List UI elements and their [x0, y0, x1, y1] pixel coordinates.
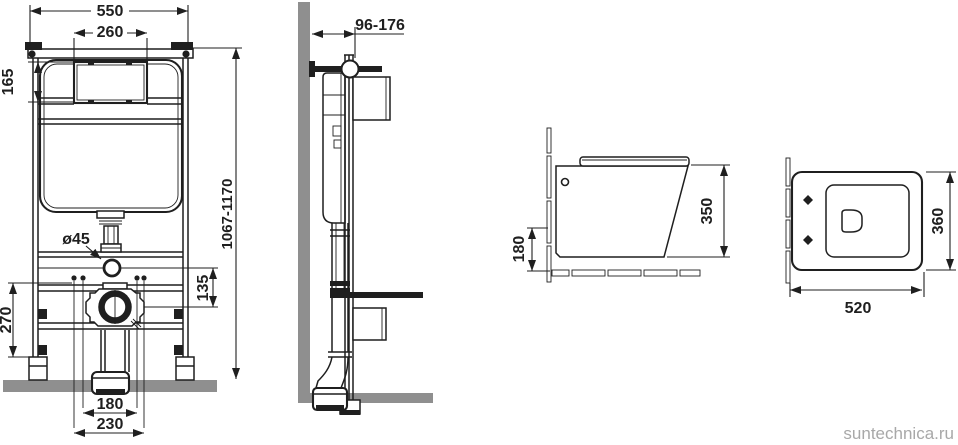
dim-stud-spacing-180: 180 — [83, 396, 137, 413]
dim-350-label: 350 — [699, 198, 716, 225]
bowl-outline-top — [792, 172, 922, 270]
dim-flush-diameter-45: ø45 — [62, 231, 101, 259]
dim-96-176-label: 96-176 — [355, 17, 405, 34]
dim-depth-96-176: 96-176 — [312, 17, 405, 58]
watermark-text: suntechnica.ru — [843, 424, 954, 443]
dim-stud-spacing-230: 230 — [74, 416, 144, 433]
bowl-top-view: 360 520 — [786, 158, 956, 317]
bowl-profile — [556, 157, 689, 257]
dim-bowl-length-520: 520 — [790, 272, 924, 317]
dim-180-label: 180 — [97, 396, 124, 413]
wall-hatch-top — [786, 158, 790, 283]
flush-pipe-fitting — [97, 211, 124, 252]
dim-270-label: 270 — [0, 307, 15, 334]
drain-assembly — [86, 283, 144, 394]
wall-side — [298, 2, 310, 403]
dim-360-label: 360 — [930, 208, 947, 235]
flush-pipe-side — [330, 223, 350, 298]
dim-frame-height-1067-1170: 1067-1170 — [193, 48, 242, 379]
bracket-nut — [342, 61, 359, 78]
floor-hatch-side — [552, 270, 700, 276]
dim-520-label: 520 — [845, 300, 872, 317]
dim-230-label: 230 — [97, 416, 124, 433]
dim-o45-label: ø45 — [62, 231, 90, 248]
corner-bracket-right — [171, 42, 193, 50]
cistern-side-profile — [323, 73, 345, 223]
dim-lower-zone-270: 270 — [0, 283, 72, 357]
screw-right — [182, 50, 189, 57]
flush-housing-box — [353, 77, 390, 120]
flush-outlet-circle — [104, 260, 120, 276]
frame-top-rail — [25, 42, 193, 58]
wall-hatch-side — [547, 128, 551, 282]
dim-bowl-width-360: 360 — [926, 172, 956, 270]
bowl-side-view: 350 180 — [511, 128, 730, 282]
corner-bracket-left — [25, 42, 42, 50]
technical-drawing-page: 550 260 165 1067-1170 ø45 — [0, 0, 958, 445]
seat-hinge-hole — [562, 179, 569, 186]
dim-height-range-label: 1067-1170 — [219, 179, 236, 250]
dim-550-label: 550 — [97, 3, 124, 20]
dim-bowl-180-label: 180 — [511, 236, 528, 263]
dim-260-label: 260 — [97, 24, 124, 41]
dim-floor-clearance-180: 180 — [511, 228, 550, 271]
drain-socket-box — [353, 308, 386, 340]
dim-165-label: 165 — [0, 69, 17, 96]
frame-side-view: 96-176 — [298, 2, 433, 415]
drain-elbow — [313, 298, 352, 410]
dim-135-label: 135 — [195, 275, 212, 302]
drawing-canvas: 550 260 165 1067-1170 ø45 — [0, 0, 958, 445]
screw-left — [28, 50, 35, 57]
frame-front-view: 550 260 165 1067-1170 ø45 — [0, 2, 242, 433]
wall-bracket — [309, 61, 382, 78]
stud-bar-side — [330, 292, 423, 298]
dim-offset-135: 135 — [195, 268, 213, 307]
